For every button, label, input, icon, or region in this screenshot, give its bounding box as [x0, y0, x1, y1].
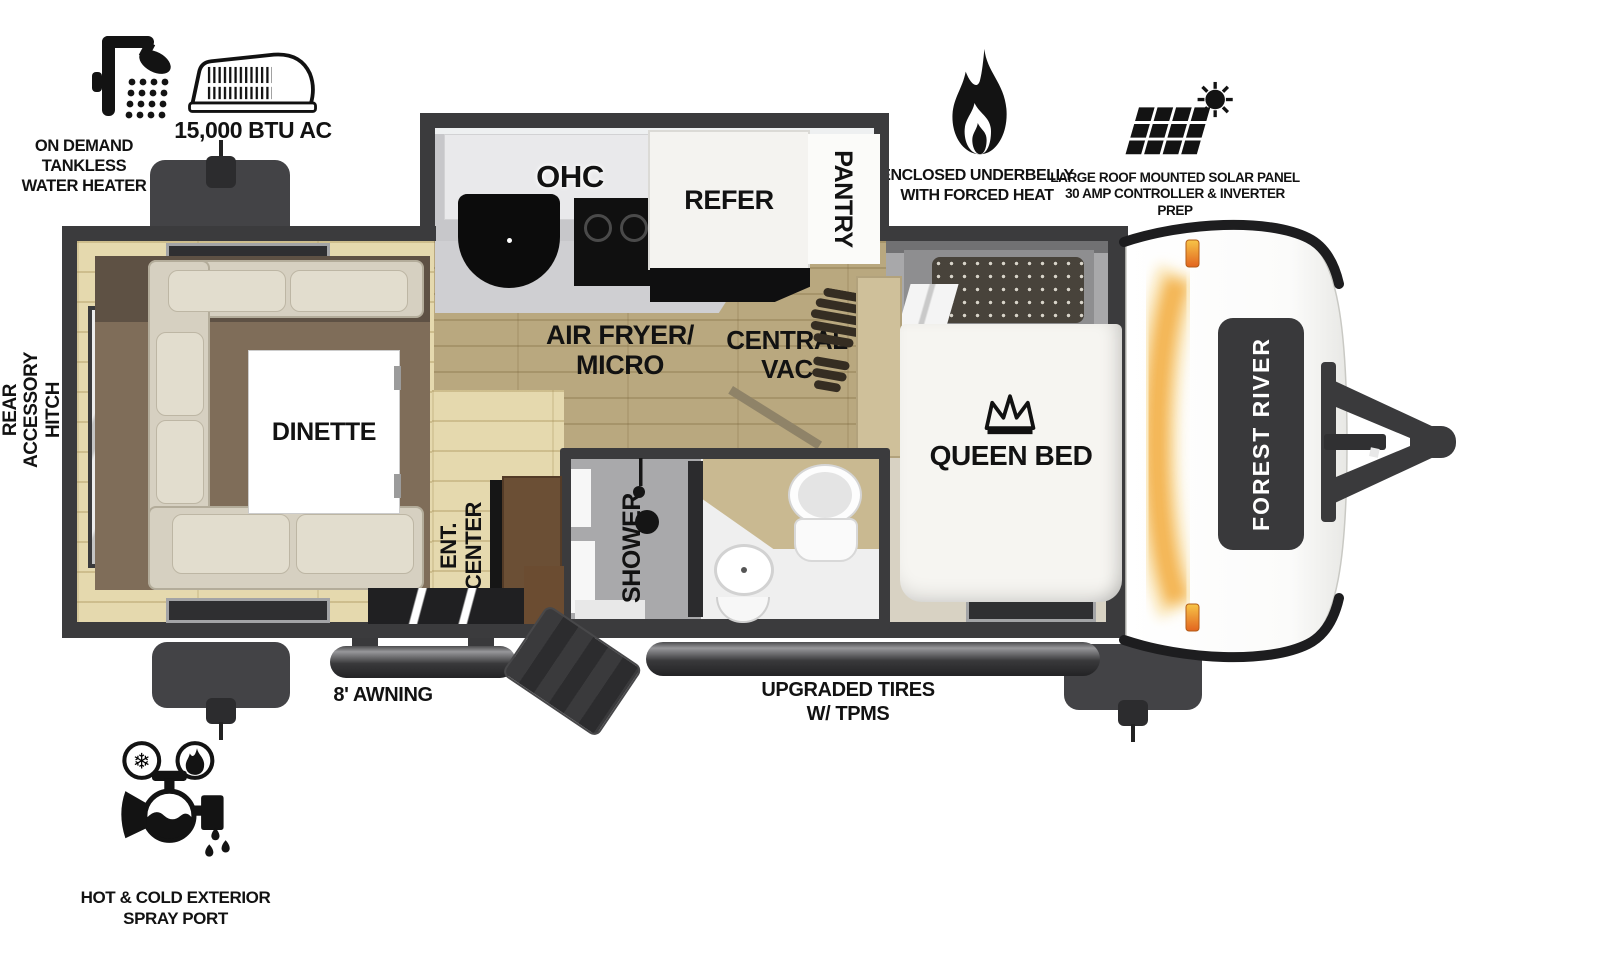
toilet-base — [794, 518, 858, 562]
stabilizer-crank-line — [219, 722, 223, 740]
tire-axle-assembly — [646, 642, 1100, 676]
water-heater-caption: ON DEMAND TANKLESS WATER HEATER — [0, 136, 168, 196]
burner — [584, 214, 612, 242]
refer-base — [650, 268, 810, 302]
faucet-hot-cold-icon: ❄ — [112, 738, 237, 873]
awning-caption: 8' AWNING — [298, 684, 468, 706]
toilet-seat — [798, 472, 852, 518]
entry-step-well — [368, 588, 524, 624]
brand-badge-text: FOREST RIVER — [1248, 337, 1274, 531]
flame-icon — [936, 46, 1024, 160]
crown-icon — [980, 392, 1040, 436]
marker-light-bottom — [1186, 604, 1199, 631]
ac-caption: 15,000 BTU AC — [158, 118, 348, 144]
burner — [620, 214, 648, 242]
tongue-hitch — [1321, 362, 1456, 522]
bedside-wardrobe — [856, 276, 902, 458]
wall-galley-top — [420, 113, 889, 128]
rooftop-ac-unit-icon — [183, 48, 323, 120]
refer-label: REFER — [684, 185, 774, 215]
snowflake-glyph: ❄ — [133, 750, 151, 774]
stabilizer-foot — [1118, 700, 1148, 726]
front-cap-graphics — [1156, 272, 1180, 610]
sofa-cushion — [156, 332, 204, 416]
front-cap: FOREST RIVER — [1118, 210, 1463, 675]
dinette-table: DINETTE — [248, 350, 400, 514]
rear-hitch-caption: REAR ACCESSORY HITCH — [0, 320, 66, 500]
table-mount-clip — [394, 366, 401, 390]
cooktop — [574, 198, 658, 286]
sofa-cushion — [296, 514, 414, 574]
shower-shelf — [571, 469, 591, 527]
sofa-cushion — [168, 270, 286, 312]
sink-drain — [741, 567, 747, 573]
marker-light-top — [1186, 240, 1199, 267]
wall-rear — [62, 226, 77, 638]
queen-bed-label: QUEEN BED — [905, 440, 1117, 471]
window-rear-bottom — [166, 598, 330, 623]
shower-head-icon — [618, 458, 663, 538]
dinette-label: DINETTE — [272, 418, 376, 446]
stabilizer-foot — [206, 156, 236, 188]
floorplan-page: ON DEMAND TANKLESS WATER HEATER 15,000 B… — [0, 0, 1600, 968]
sofa-cushion — [156, 420, 204, 504]
stabilizer-foot — [206, 698, 236, 724]
sofa-cushion — [290, 270, 408, 312]
pantry-label: PANTRY — [831, 139, 857, 259]
tires-caption: UPGRADED TIRES W/ TPMS — [756, 678, 940, 727]
table-mount-clip — [394, 474, 401, 498]
awning-roll — [330, 646, 516, 678]
refrigerator: REFER — [648, 130, 810, 270]
spray-port-caption: HOT & COLD EXTERIOR SPRAY PORT — [78, 888, 273, 929]
window-bed-bottom — [966, 599, 1096, 622]
shower-head-icon — [92, 32, 174, 130]
sofa-cushion — [172, 514, 290, 574]
wall-galley-left — [420, 113, 435, 241]
wall-top-front — [874, 226, 1128, 241]
solar-panel-sun-icon — [1124, 80, 1236, 164]
wall-top-rear — [62, 226, 436, 241]
sink-drain — [507, 238, 512, 243]
shower-glass-door — [688, 461, 703, 617]
ohc-label: OHC — [536, 160, 604, 195]
stabilizer-crank-line — [1131, 724, 1135, 742]
